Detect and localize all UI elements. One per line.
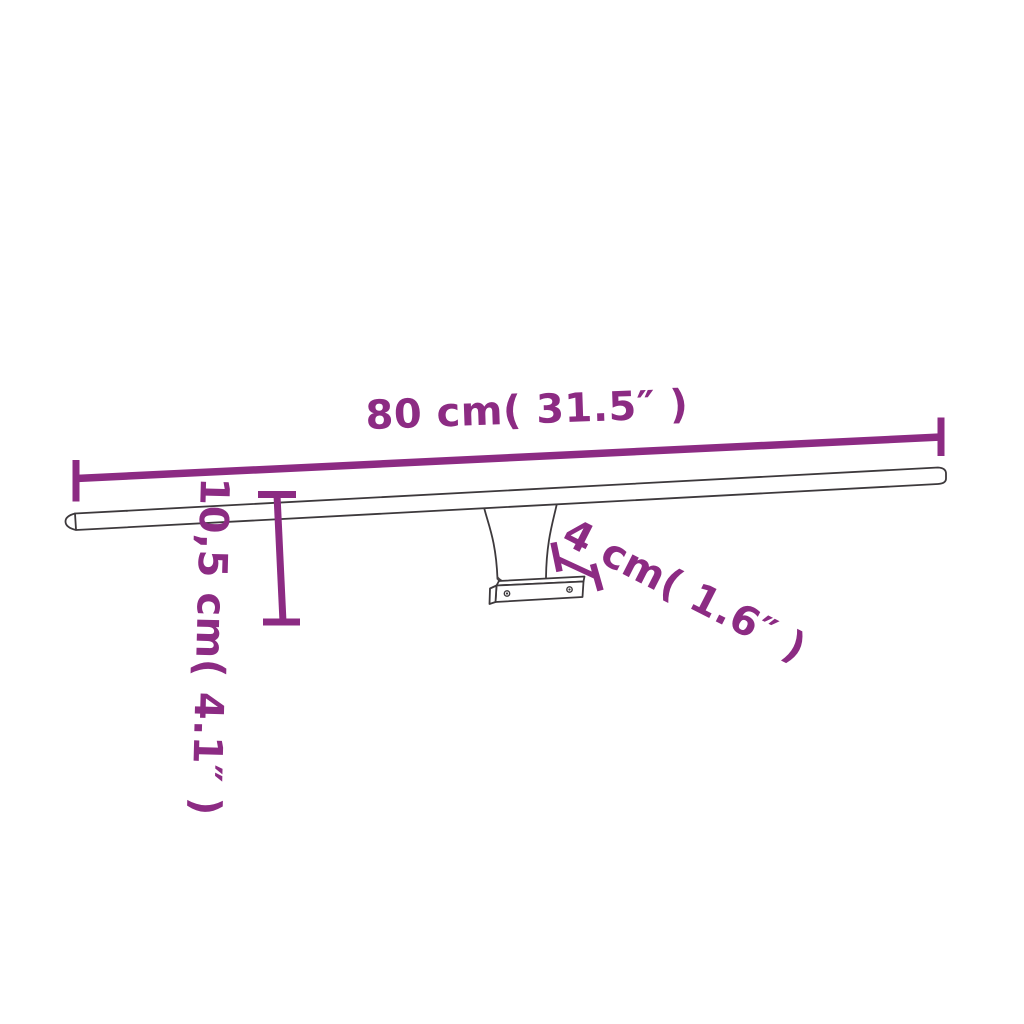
height-dimension-label: 10,5 cm( 4.1″ ): [182, 477, 237, 817]
light-bar-end-cap-edge: [75, 514, 76, 530]
width-dimension-label: 80 cm( 31.5″ ): [365, 382, 689, 439]
width-dimension-line: [76, 437, 941, 479]
mount-stem: [484, 503, 557, 584]
dimension-diagram: 80 cm( 31.5″ ) 10,5 cm( 4.1″ ) 4 cm( 1.6…: [0, 0, 1024, 1024]
diagram-canvas: 80 cm( 31.5″ ) 10,5 cm( 4.1″ ) 4 cm( 1.6…: [0, 0, 1024, 1024]
depth-dimension-label: 4 cm( 1.6″ ): [555, 510, 813, 672]
mount-bracket: [490, 577, 585, 605]
screw-hole-right: [567, 587, 572, 592]
screw-hole-left: [504, 591, 509, 596]
bracket-left-side-face: [490, 586, 497, 605]
